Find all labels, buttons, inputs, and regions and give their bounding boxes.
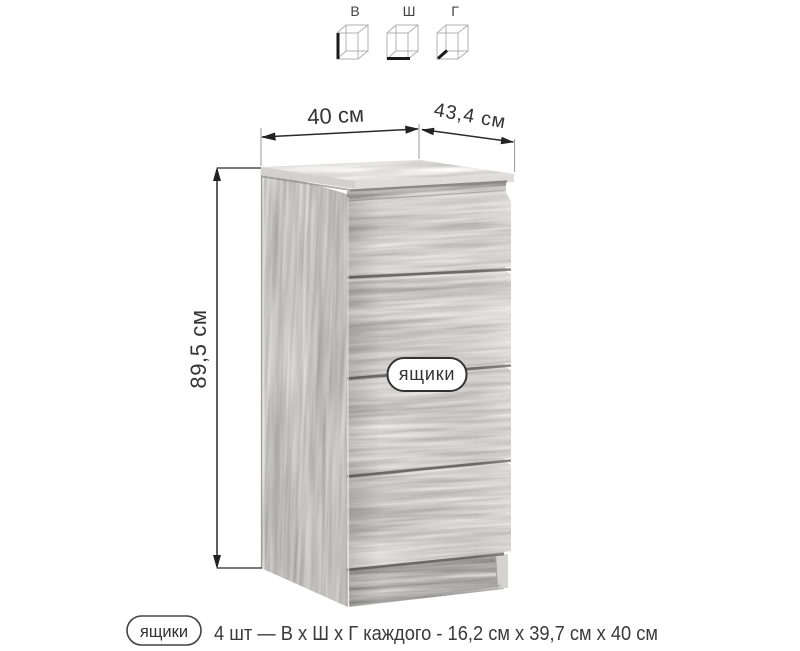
- svg-text:Ш: Ш: [403, 3, 416, 19]
- svg-text:ящики: ящики: [140, 623, 188, 641]
- svg-text:ящики: ящики: [399, 364, 456, 384]
- svg-text:4 шт — В х Ш х Г каждого - 16,: 4 шт — В х Ш х Г каждого - 16,2 см х 39,…: [214, 623, 658, 645]
- svg-text:В: В: [350, 3, 359, 19]
- svg-text:Г: Г: [451, 3, 459, 19]
- svg-text:89,5 см: 89,5 см: [186, 309, 211, 388]
- svg-text:40 см: 40 см: [307, 102, 365, 130]
- svg-text:43,4 см: 43,4 см: [432, 99, 508, 133]
